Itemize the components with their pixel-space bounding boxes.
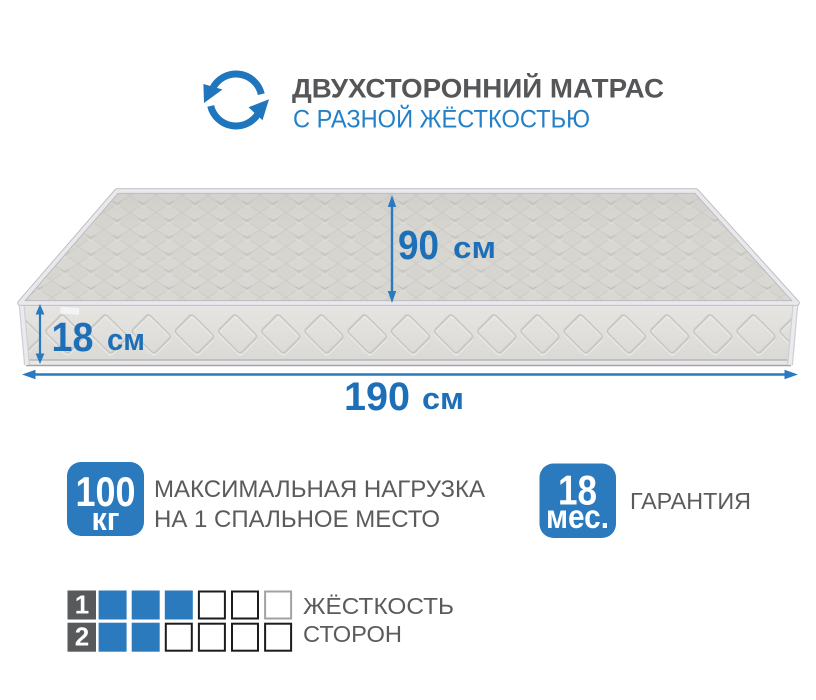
svg-text:1: 1 <box>75 590 89 620</box>
svg-text:мес.: мес. <box>546 498 609 535</box>
svg-text:С РАЗНОЙ ЖЁСТКОСТЬЮ: С РАЗНОЙ ЖЁСТКОСТЬЮ <box>293 104 590 134</box>
svg-text:18: 18 <box>52 314 94 360</box>
svg-text:см: см <box>422 381 464 416</box>
svg-text:ГАРАНТИЯ: ГАРАНТИЯ <box>630 488 751 514</box>
svg-text:см: см <box>453 230 496 265</box>
svg-text:см: см <box>107 322 145 357</box>
svg-text:НА 1 СПАЛЬНОЕ МЕСТО: НА 1 СПАЛЬНОЕ МЕСТО <box>154 506 440 533</box>
svg-text:190: 190 <box>344 375 410 419</box>
svg-text:ЖЁСТКОСТЬ: ЖЁСТКОСТЬ <box>303 593 454 619</box>
svg-text:кг: кг <box>92 501 120 537</box>
svg-text:ДВУХСТОРОННИЙ МАТРАС: ДВУХСТОРОННИЙ МАТРАС <box>292 73 664 104</box>
svg-text:МАКСИМАЛЬНАЯ НАГРУЗКА: МАКСИМАЛЬНАЯ НАГРУЗКА <box>154 476 485 503</box>
svg-text:2: 2 <box>75 622 89 652</box>
svg-text:СТОРОН: СТОРОН <box>303 621 402 647</box>
svg-text:90: 90 <box>398 222 439 268</box>
